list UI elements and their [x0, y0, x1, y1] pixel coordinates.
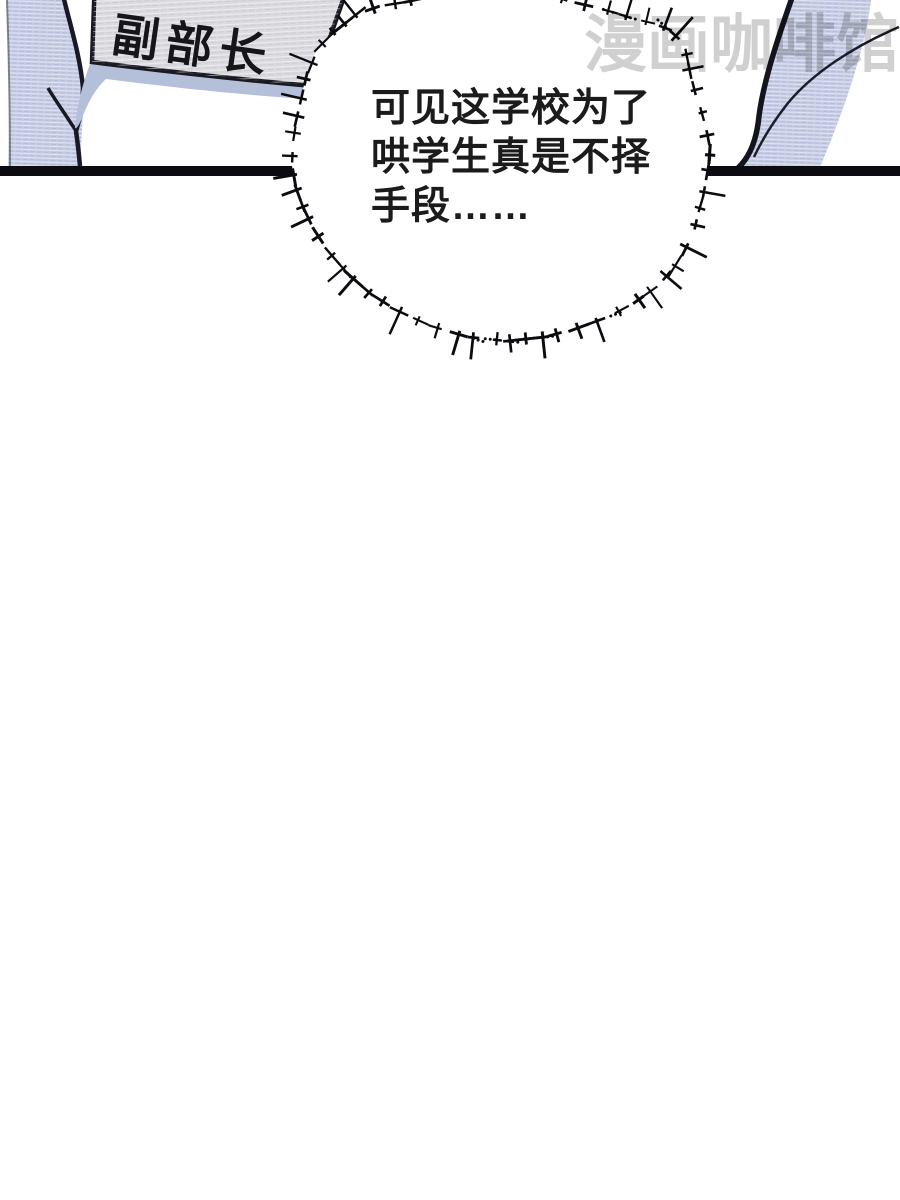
speech-line-3: 手段……	[371, 182, 651, 231]
speech-line-1: 可见这学校为了	[371, 84, 651, 133]
comic-page: 副部长 可见这学校为了 哄学生真是不择 手段…… 漫画咖啡馆	[0, 0, 900, 1200]
watermark-text: 漫画咖啡馆	[584, 0, 899, 85]
speech-line-2: 哄学生真是不择	[371, 133, 651, 182]
speech-text: 可见这学校为了 哄学生真是不择 手段……	[371, 84, 651, 231]
left-sleeve	[6, 0, 84, 167]
